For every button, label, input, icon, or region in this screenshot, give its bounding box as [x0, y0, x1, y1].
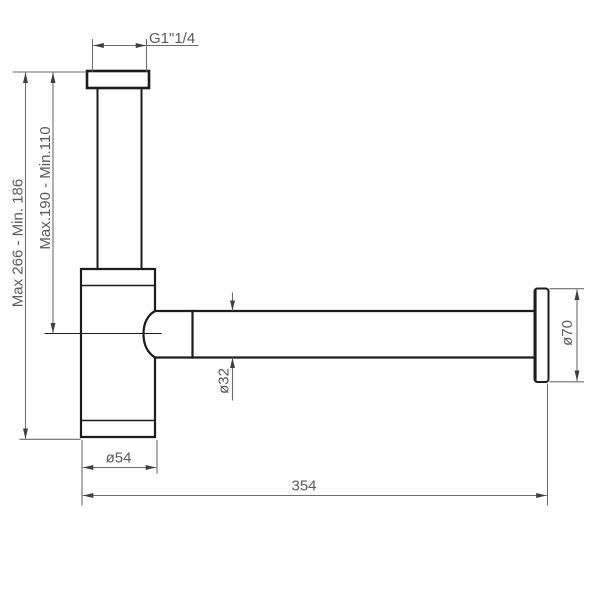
trap-body-rings [81, 286, 155, 421]
inlet-height-label: Max.190 - Min.110 [37, 126, 54, 249]
horizontal-pipe [193, 311, 535, 358]
total-length-label: 354 [291, 478, 316, 495]
flange-diameter-label: ø70 [559, 320, 576, 346]
inlet-thread-extension-lines [93, 40, 147, 72]
inlet-cap-nut [87, 71, 149, 88]
outlet-connector-nut [155, 311, 193, 358]
body-diameter-label: ø54 [106, 450, 132, 467]
pipe-diameter-label: ø32 [216, 368, 233, 394]
inlet-thread-label: G1"1/4 [149, 30, 195, 47]
technical-drawing-page: G1"1/4 Max 266 - Min. 186 Max.190 - Min.… [0, 0, 600, 600]
total-height-label: Max 266 - Min. 186 [10, 179, 27, 307]
tailpipe [98, 89, 142, 270]
bottle-trap-drawing-canvas: G1"1/4 Max 266 - Min. 186 Max.190 - Min.… [0, 0, 600, 600]
trap-body [81, 269, 155, 437]
